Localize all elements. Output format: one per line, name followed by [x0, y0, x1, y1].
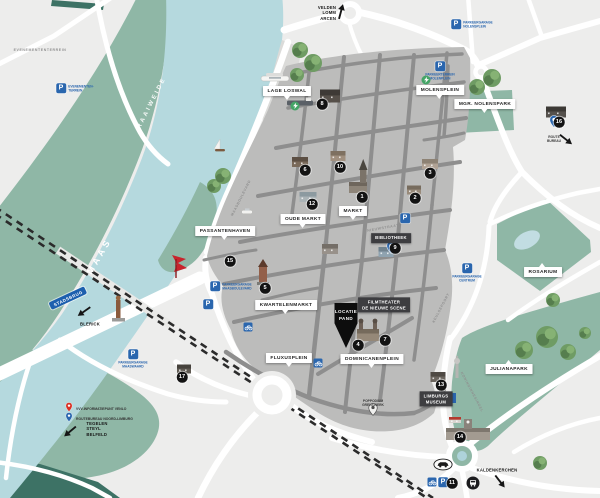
label-pointer [284, 96, 290, 100]
parking-icon-parkeergarage-maasboulevard[interactable]: PPARKEERGARAGEMAASBOULEVARD [210, 281, 220, 291]
label-pointer [282, 310, 288, 314]
tree [215, 168, 231, 184]
poi-marker-14[interactable]: 14 [455, 432, 466, 443]
tree [560, 344, 576, 360]
parking-icon-parkeergarage-centrum[interactable]: PPARKEERGARAGECENTRUM [462, 263, 472, 273]
parking-icon-parkeergarage-nolensplein[interactable]: PPARKEERGARAGENOLENSPLEIN [451, 19, 461, 29]
tree [469, 79, 485, 95]
place-label-oude-markt: OUDE MARKT [280, 214, 325, 224]
direction-sign-blerick: BLERICK [80, 321, 100, 326]
car-route-icon[interactable] [433, 458, 453, 476]
building-illustration [322, 244, 338, 254]
tree [533, 456, 547, 470]
dark-label-filmtheater-de-nieuwe-scene: FILMTHEATERDE NIEUWE SCENE [358, 297, 410, 312]
poi-marker-2[interactable]: 2 [410, 193, 421, 204]
place-label-fluxusplein: FLUXUSPLEIN [266, 353, 312, 363]
city-map: RAAIWEIDEMAASMAASBOULEVARDNIEUWSTRAATKEU… [0, 0, 600, 498]
label-pointer [299, 224, 305, 228]
bicycle-parking-icon[interactable] [244, 323, 253, 332]
dark-label-limburgs-museum: LIMBURGSMUSEUM [420, 391, 453, 406]
charging-point-icon[interactable] [422, 76, 431, 85]
tree [304, 54, 322, 72]
tree [579, 327, 591, 339]
direction-arrow [492, 473, 509, 491]
bicycle-parking-icon[interactable] [428, 478, 437, 487]
label-pointer [221, 236, 227, 240]
dark-label-bibliotheek: BIBLIOTHEEK [371, 233, 411, 243]
poi-marker-5[interactable]: 5 [260, 283, 271, 294]
poi-marker-15[interactable]: 15 [225, 256, 236, 267]
label-pointer [482, 109, 488, 113]
poi-marker-10[interactable]: 10 [335, 162, 346, 173]
place-label-kwartelenmarkt: KWARTELENMARKT [255, 300, 317, 310]
tree [536, 326, 558, 348]
tree [515, 341, 533, 359]
poi-marker-17[interactable]: 17 [177, 372, 188, 383]
parking-icon-parkeergarage-maaswaard[interactable]: PPARKEERGARAGEMAASWAARD [128, 349, 138, 359]
parking-icon-5[interactable]: P [400, 213, 410, 223]
direction-arrow [76, 303, 93, 321]
place-label-markt: MARKT [339, 206, 367, 216]
street-name-evenemententerrein: EVENEMENTENTERREIN [14, 48, 67, 52]
tree [290, 68, 304, 82]
pin-direction-arrow [558, 131, 575, 149]
bus-stop-icon[interactable] [467, 477, 480, 490]
label-pointer [539, 263, 545, 267]
poi-marker-12[interactable]: 12 [307, 199, 318, 210]
place-label-lage-loswal: LAGE LOSWAL [263, 86, 311, 96]
label-pointer [285, 363, 291, 367]
building-illustration [449, 417, 461, 423]
bicycle-parking-icon[interactable] [314, 359, 323, 368]
parking-label: PARKEERGARAGEMAASWAARD [118, 360, 147, 369]
place-label-rosarium: ROSARIUM [524, 267, 562, 277]
pin-label-poppodium-grenswerk: POPPODIUMGRENSWERK [362, 399, 384, 408]
place-label-molensplein: MOLENSPLEIN [416, 85, 464, 95]
label-pointer [506, 360, 512, 364]
building-illustration [331, 151, 346, 161]
place-label-mgr-nolenspark: MGR. NOLENSPARK [454, 99, 515, 109]
place-label-dominicanenplein: DOMINICANENPLEIN [340, 354, 403, 364]
parking-icon-parkeerterrein-molenplein[interactable]: PPARKEERTERREINMOLENPLEIN [435, 61, 445, 71]
poi-marker-3[interactable]: 3 [425, 168, 436, 179]
poi-marker-11[interactable]: 11 [447, 478, 458, 489]
place-label-julianapark: JULIANAPARK [486, 364, 533, 374]
poi-marker-4[interactable]: 4 [353, 340, 364, 351]
parking-label: PARKEERGARAGEMAASBOULEVARD [222, 282, 251, 291]
poi-marker-8[interactable]: 8 [317, 99, 328, 110]
parking-icon-evenementen-terrein[interactable]: PEVENEMENTEN-TERREIN [56, 83, 66, 93]
poi-marker-7[interactable]: 7 [380, 335, 391, 346]
parking-label: PARKEERGARAGENOLENSPLEIN [463, 20, 492, 29]
parking-label: PARKEERGARAGECENTRUM [452, 274, 481, 283]
tree [292, 42, 308, 58]
poi-marker-1[interactable]: 1 [357, 192, 368, 203]
poi-marker-6[interactable]: 6 [300, 165, 311, 176]
direction-sign-tegelen-steyl-belfeld: TEGELENSTEYLBELFELD [86, 421, 107, 437]
parking-label: EVENEMENTEN-TERREIN [68, 84, 93, 93]
poi-marker-9[interactable]: 9 [390, 243, 401, 254]
label-pointer [368, 364, 374, 368]
place-label-passantenhaven: PASSANTENHAVEN [195, 226, 255, 236]
label-pointer [349, 216, 355, 220]
direction-arrow [333, 3, 350, 21]
parking-icon-4[interactable]: P [203, 299, 213, 309]
direction-arrow [62, 423, 79, 441]
poi-marker-13[interactable]: 13 [436, 380, 447, 391]
poi-marker-16[interactable]: 16 [554, 117, 565, 128]
charging-point-icon[interactable] [291, 102, 300, 111]
tree [546, 293, 560, 307]
label-pointer [437, 95, 443, 99]
tree [483, 69, 501, 87]
